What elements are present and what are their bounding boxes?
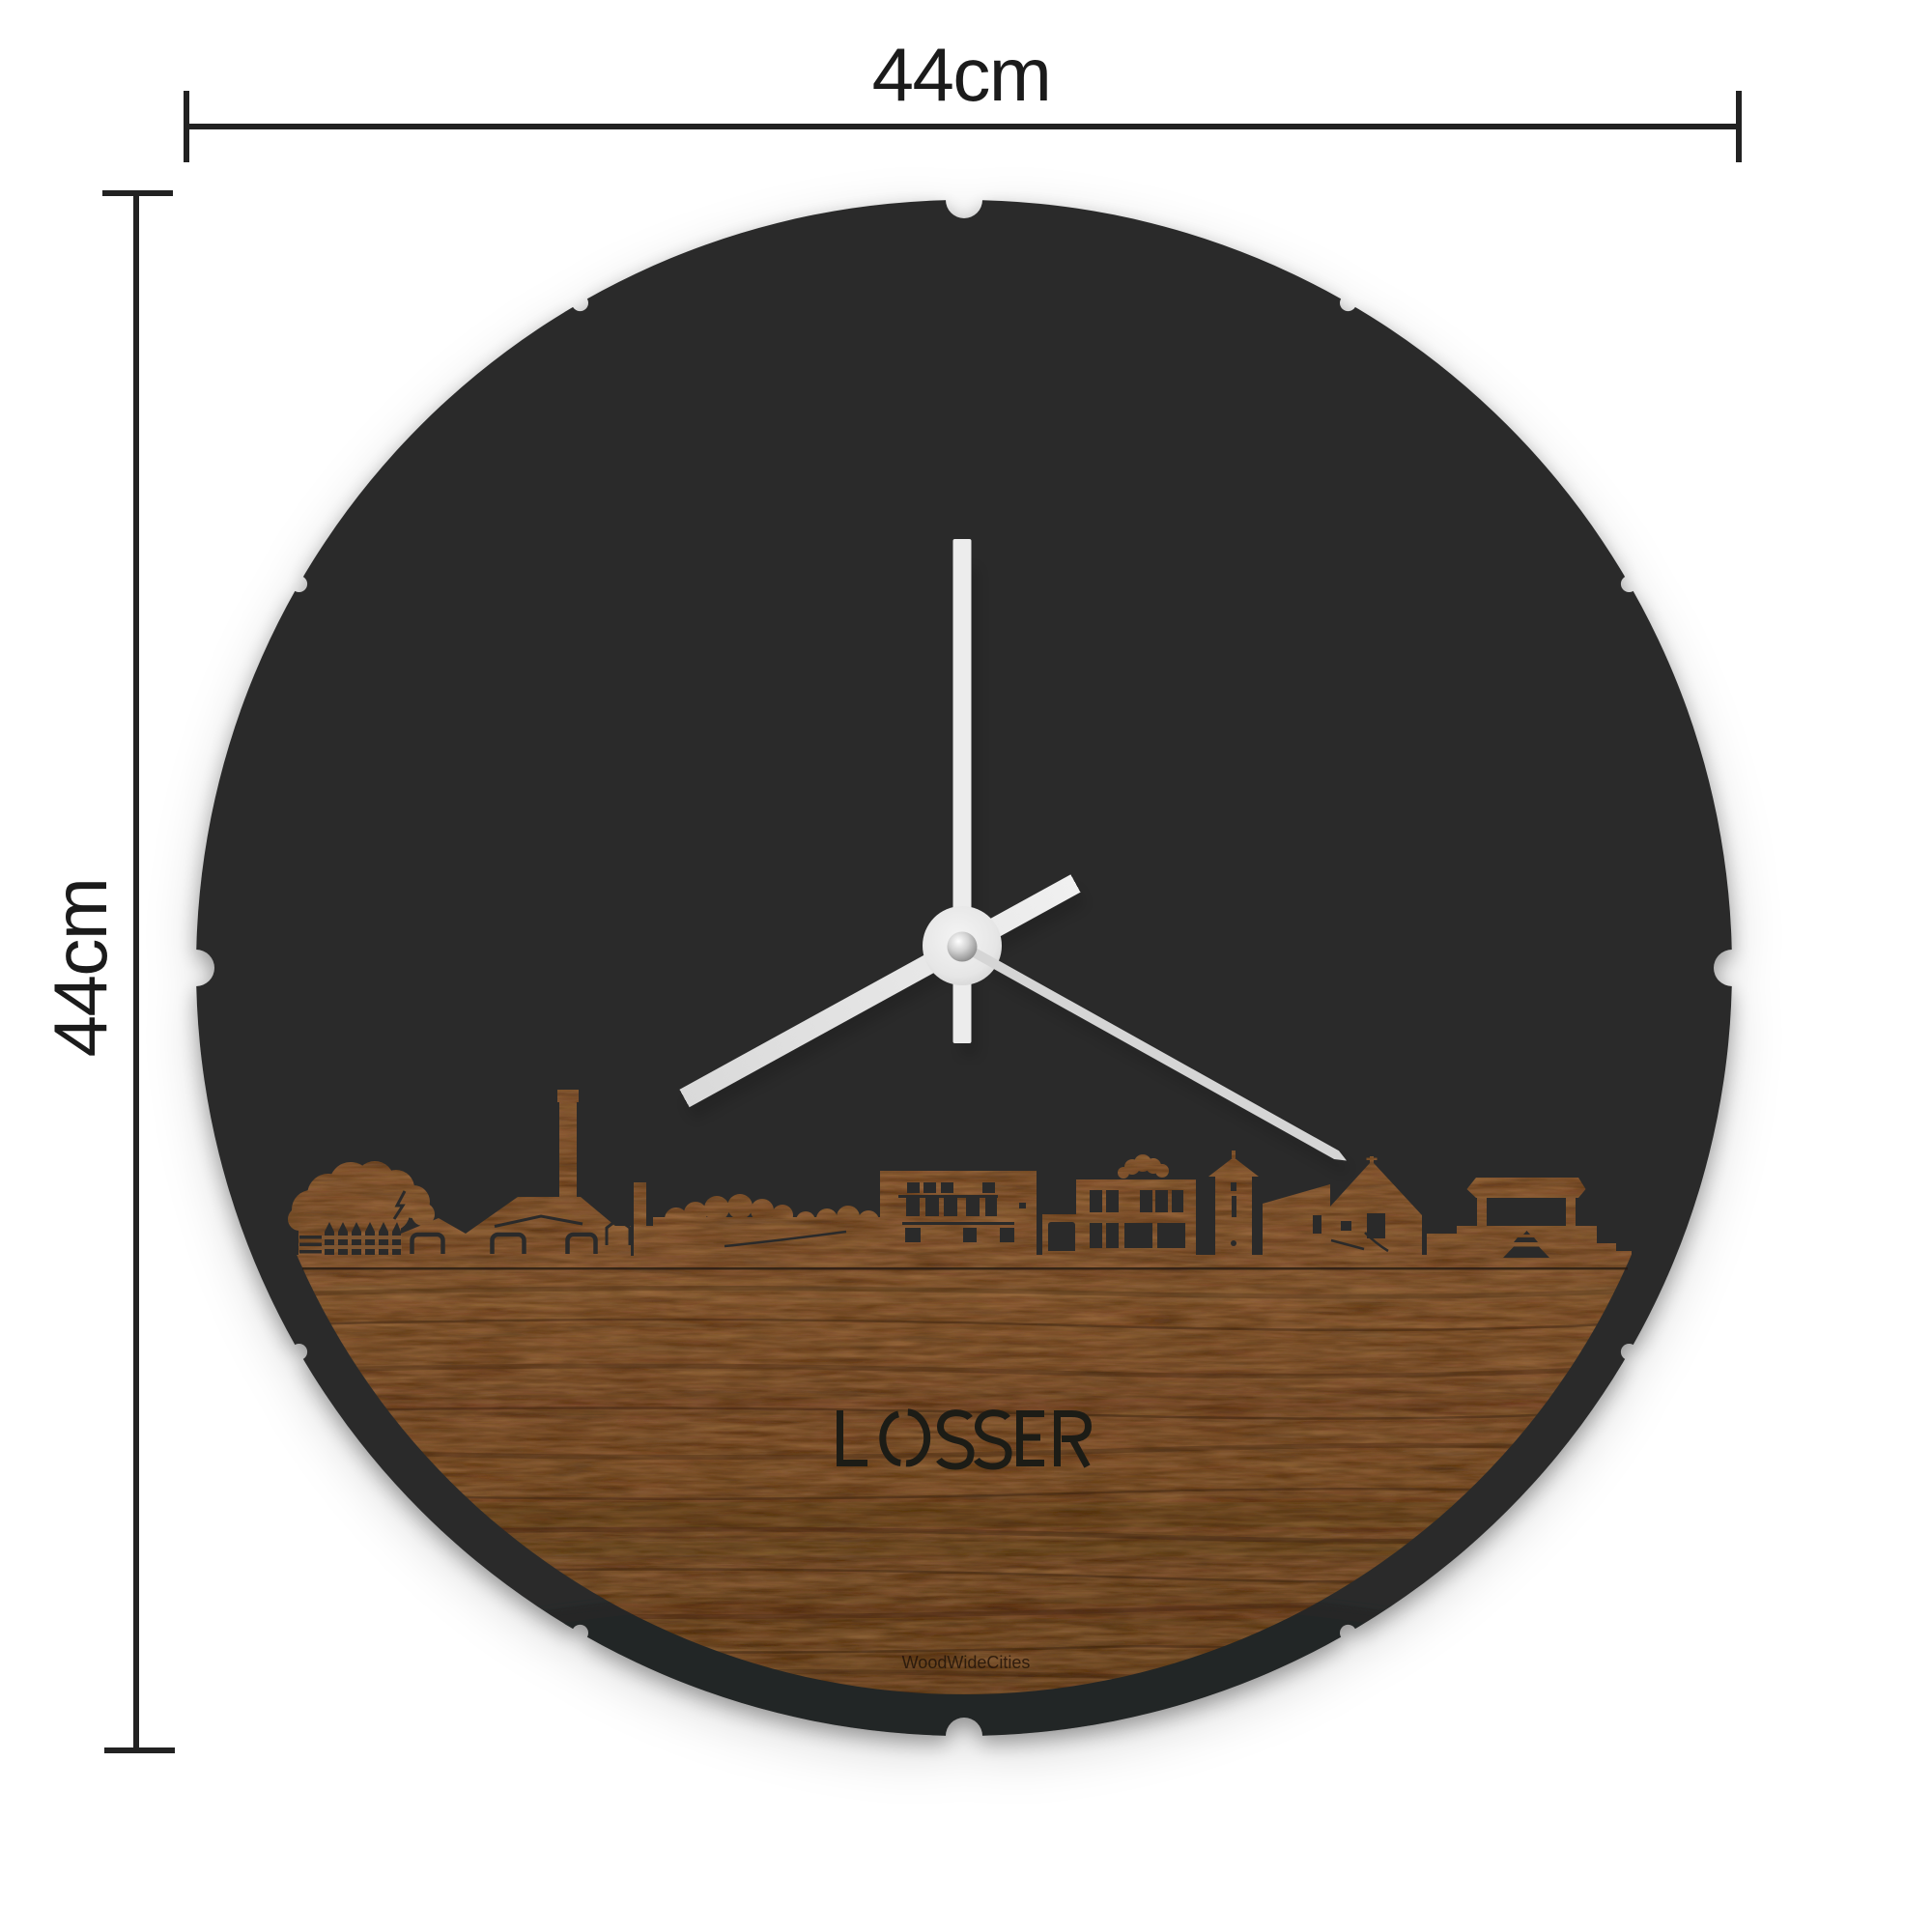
svg-text:WoodWideCities: WoodWideCities bbox=[902, 1653, 1031, 1672]
svg-text:44cm: 44cm bbox=[872, 32, 1051, 117]
svg-text:44cm: 44cm bbox=[38, 879, 123, 1058]
